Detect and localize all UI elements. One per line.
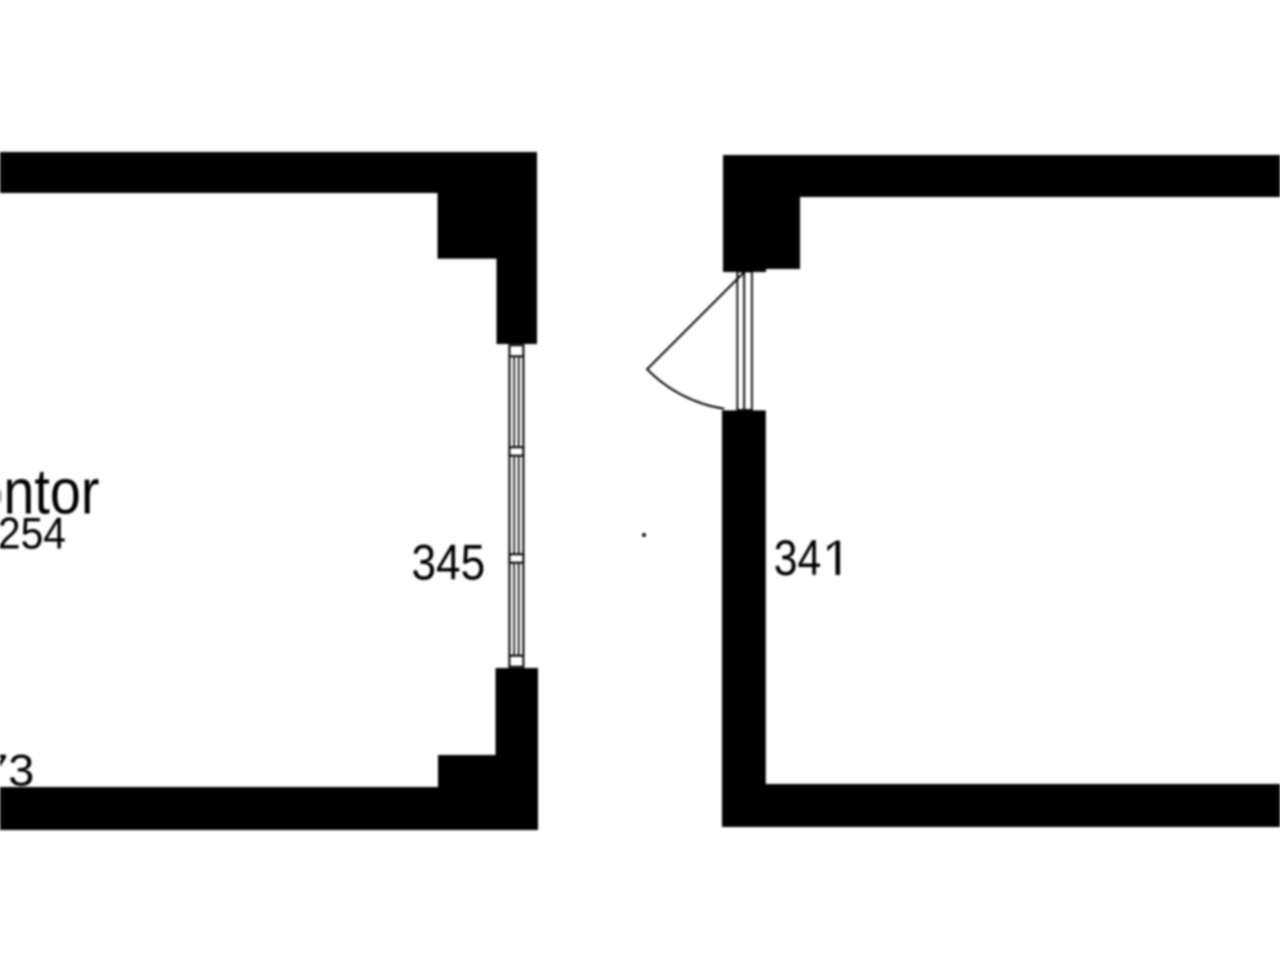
svg-text:345: 345 [412,534,486,590]
svg-text:254: 254 [0,509,66,559]
svg-text:34: 34 [774,530,822,586]
svg-text:73: 73 [0,746,34,796]
